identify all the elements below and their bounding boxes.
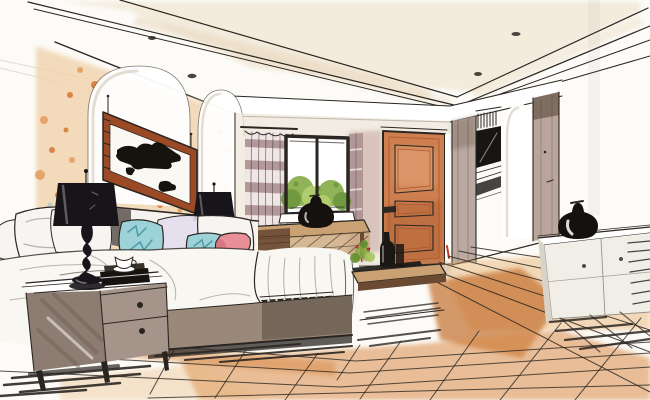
bedroom-sketch-image [0,0,650,400]
downlight-icon [148,36,156,40]
downlight-icon [512,32,521,36]
downlight-icon [188,74,197,78]
dresser-knob [582,264,586,268]
page-shading [588,0,600,215]
bedroom-sketch [0,0,650,400]
drawer-knob [139,328,145,334]
drawer-knob [137,302,143,308]
dresser-knob [619,257,623,261]
downlight-icon [474,72,482,76]
door-handle [384,206,396,213]
